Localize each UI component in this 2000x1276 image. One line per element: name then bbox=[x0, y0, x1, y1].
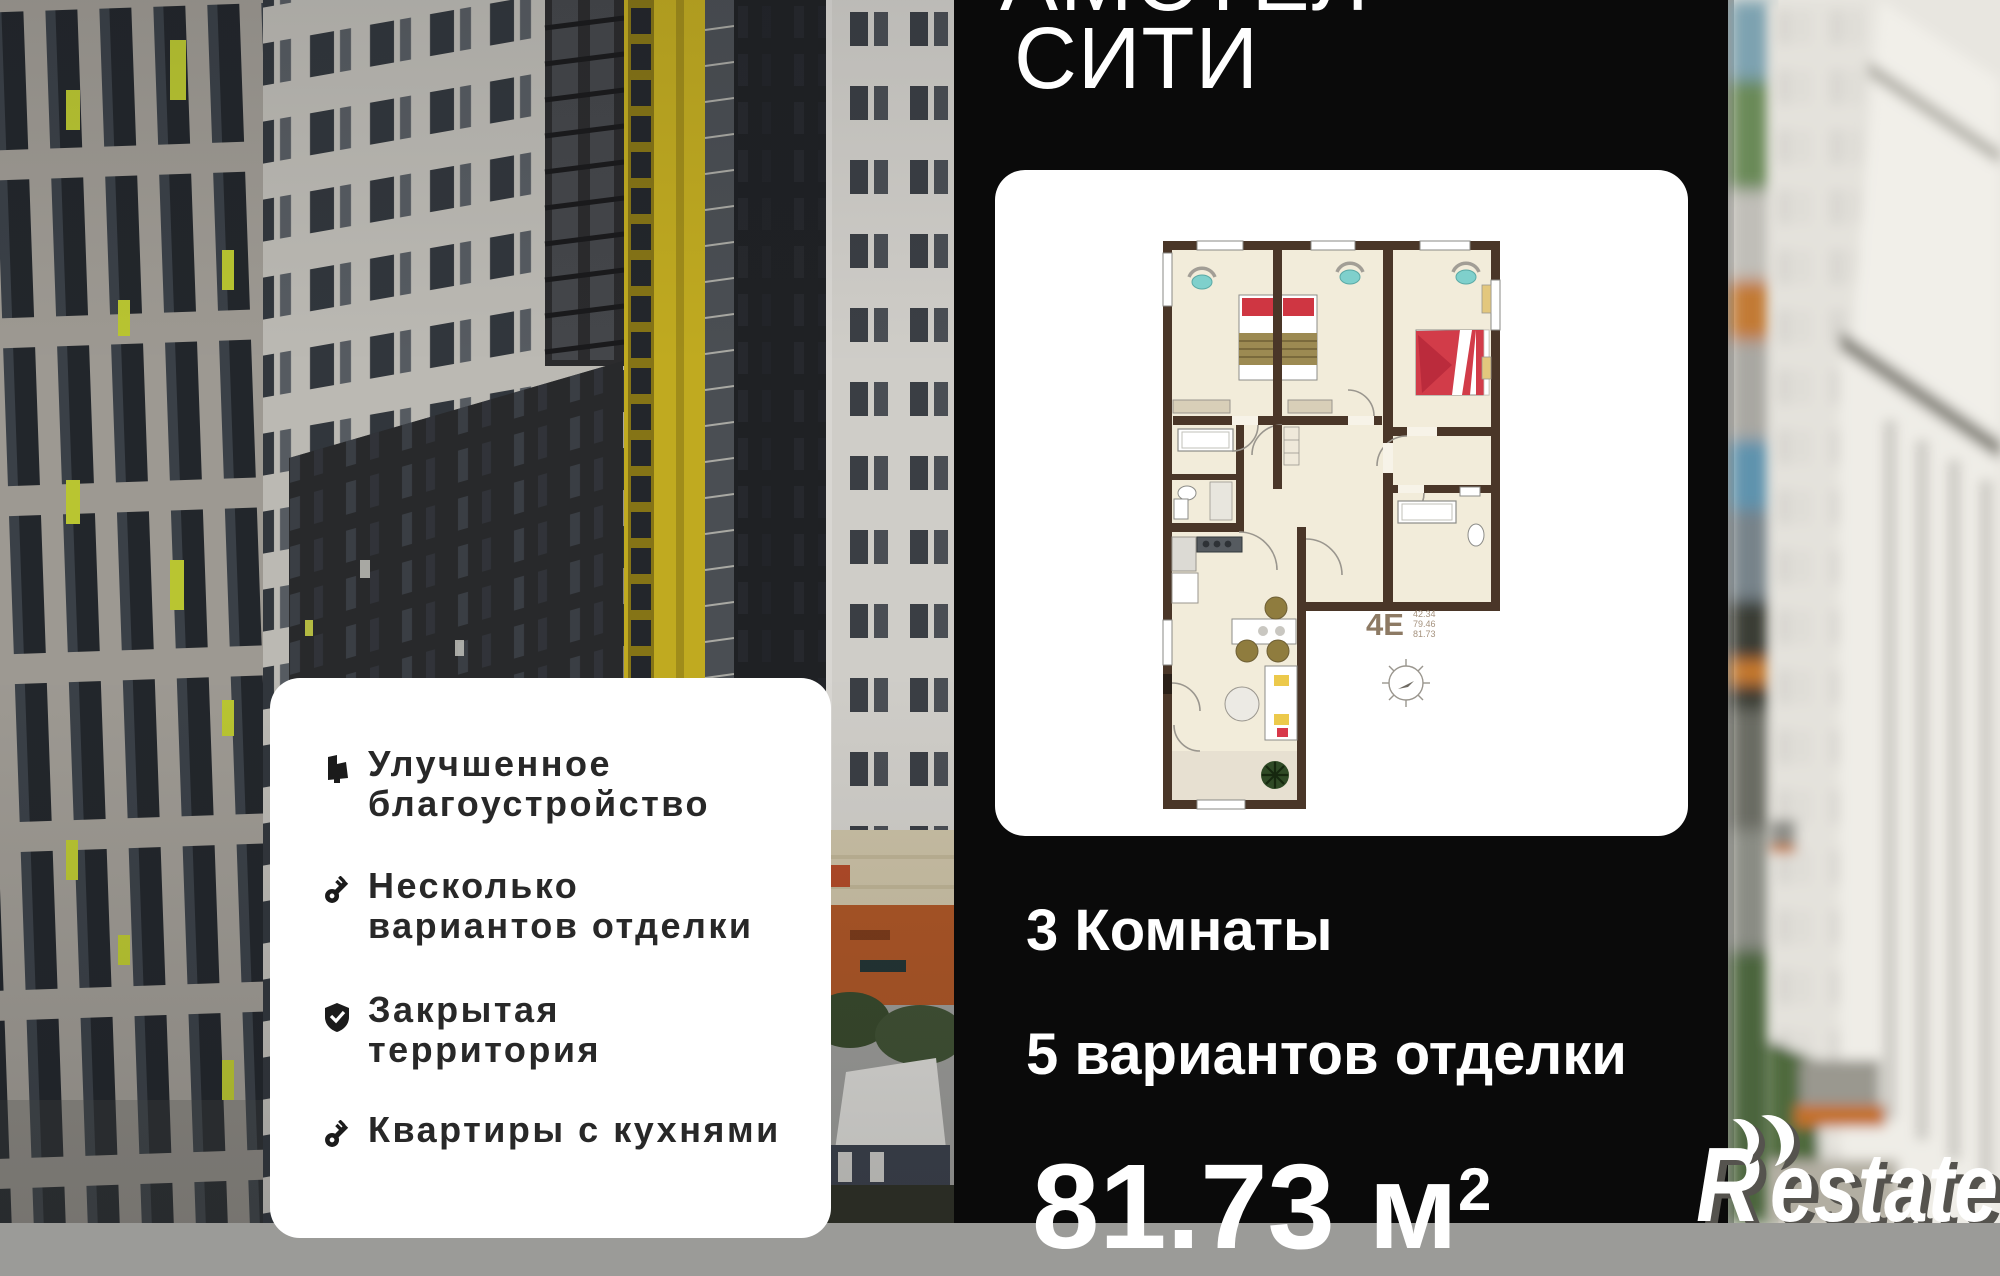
svg-text:42.34: 42.34 bbox=[1413, 609, 1436, 619]
svg-text:estate: estate bbox=[1770, 1132, 1998, 1223]
svg-text:81.73: 81.73 bbox=[1413, 629, 1436, 639]
svg-text:4Е: 4Е bbox=[1366, 607, 1404, 642]
svg-text:79.46: 79.46 bbox=[1413, 619, 1436, 629]
